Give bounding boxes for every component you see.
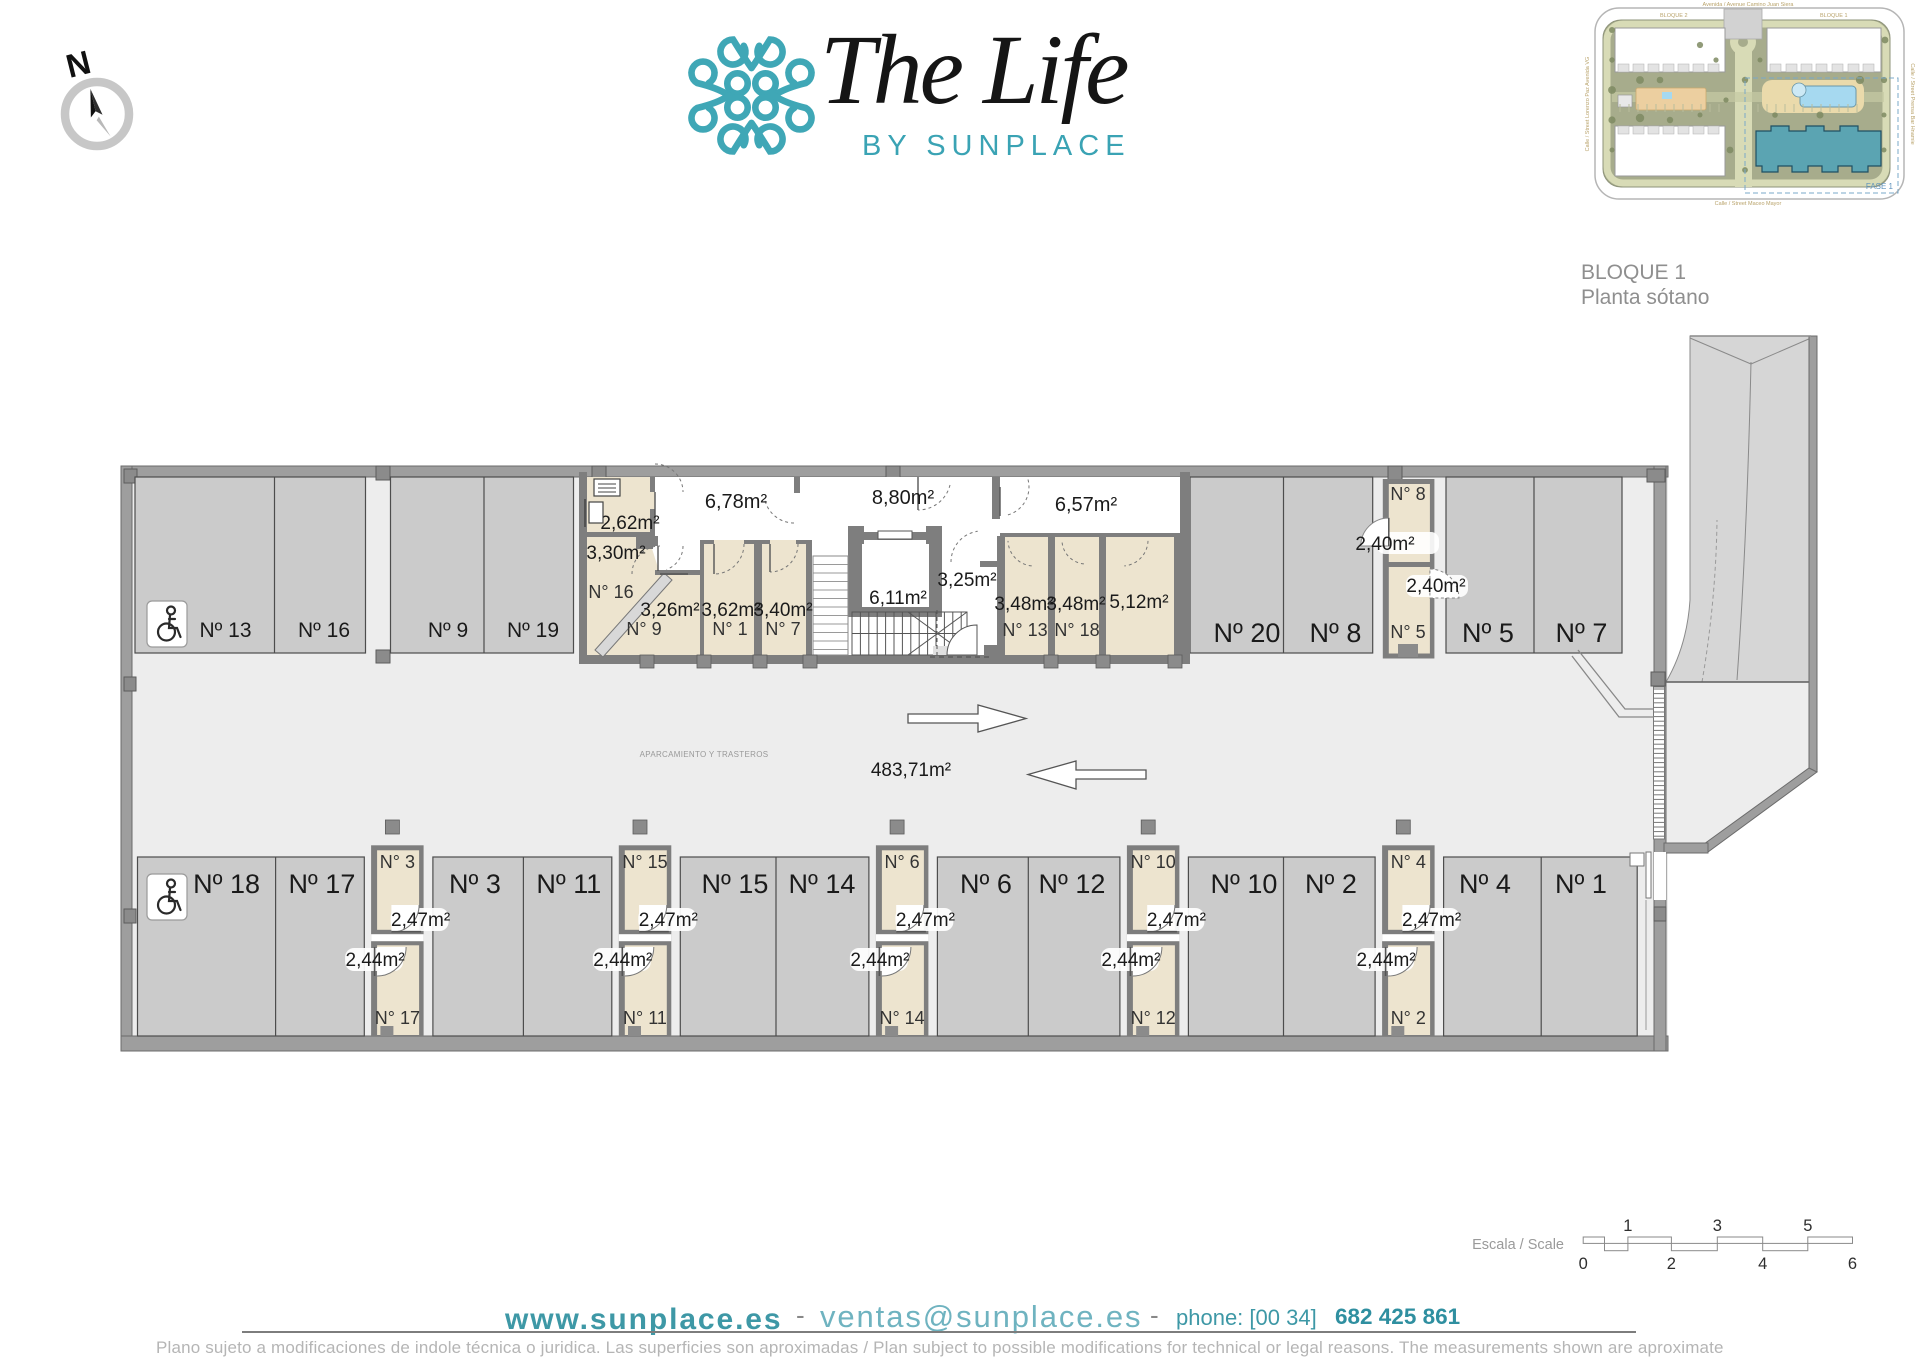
svg-text:N° 11: N° 11 [623, 1008, 667, 1028]
svg-text:3,48m²: 3,48m² [994, 594, 1053, 615]
svg-text:0: 0 [1579, 1255, 1588, 1272]
svg-text:2,40m²: 2,40m² [1355, 534, 1414, 555]
svg-text:N° 16: N° 16 [588, 582, 633, 602]
svg-text:Nº 2: Nº 2 [1305, 869, 1357, 899]
svg-text:N° 8: N° 8 [1390, 484, 1425, 504]
svg-text:Nº 18: Nº 18 [193, 869, 260, 899]
svg-text:6,11m²: 6,11m² [869, 588, 927, 609]
svg-text:N° 10: N° 10 [1131, 852, 1176, 872]
svg-text:Nº 15: Nº 15 [702, 869, 769, 899]
svg-text:1: 1 [1623, 1217, 1632, 1235]
svg-text:Nº 10: Nº 10 [1211, 869, 1278, 899]
svg-text:3,40m²: 3,40m² [753, 600, 812, 621]
svg-text:N° 14: N° 14 [879, 1008, 924, 1028]
svg-text:N° 13: N° 13 [1002, 620, 1047, 640]
svg-text:2,44m²: 2,44m² [593, 950, 652, 971]
svg-text:2,40m²: 2,40m² [1406, 576, 1465, 597]
svg-text:2,47m²: 2,47m² [391, 910, 450, 931]
svg-text:2: 2 [1667, 1255, 1676, 1272]
svg-text:3,62m²: 3,62m² [701, 600, 760, 621]
svg-text:Nº 7: Nº 7 [1556, 618, 1608, 648]
svg-text:3,30m²: 3,30m² [586, 543, 645, 564]
svg-text:N° 17: N° 17 [375, 1008, 420, 1028]
svg-text:6: 6 [1848, 1255, 1857, 1272]
svg-text:N° 2: N° 2 [1391, 1008, 1426, 1028]
svg-text:BLOQUE 1: BLOQUE 1 [1820, 13, 1848, 19]
svg-text:Calle / Street Prensa Bar Hna: Calle / Street Prensa Bar Hnamie [1909, 63, 1915, 144]
svg-text:Avenida / Avenue Camino Juan: Avenida / Avenue Camino Juan Siera [1703, 2, 1795, 8]
svg-text:N° 9: N° 9 [626, 619, 661, 639]
svg-text:N° 15: N° 15 [622, 852, 667, 872]
svg-text:Nº 12: Nº 12 [1039, 869, 1106, 899]
svg-text:Nº 19: Nº 19 [507, 619, 559, 642]
svg-text:FASE 1: FASE 1 [1866, 182, 1894, 191]
svg-text:N° 6: N° 6 [884, 852, 919, 872]
svg-text:APARCAMIENTO Y TRASTEROS: APARCAMIENTO Y TRASTEROS [640, 750, 769, 759]
svg-text:Calle / Street Maceo Mayor: Calle / Street Maceo Mayor [1715, 201, 1782, 207]
svg-text:4: 4 [1758, 1255, 1767, 1272]
svg-text:Nº 13: Nº 13 [199, 619, 251, 642]
svg-text:N° 4: N° 4 [1391, 852, 1426, 872]
svg-text:5,12m²: 5,12m² [1109, 592, 1168, 613]
svg-text:N° 18: N° 18 [1054, 620, 1099, 640]
svg-text:Nº 17: Nº 17 [288, 869, 355, 899]
svg-text:6,78m²: 6,78m² [705, 491, 768, 513]
svg-text:Nº 6: Nº 6 [960, 869, 1012, 899]
svg-text:2,47m²: 2,47m² [896, 910, 955, 931]
svg-text:Escala / Scale: Escala / Scale [1472, 1237, 1564, 1253]
svg-text:2,44m²: 2,44m² [1101, 950, 1160, 971]
svg-text:Nº 8: Nº 8 [1310, 618, 1362, 648]
svg-text:Nº 11: Nº 11 [536, 869, 601, 899]
svg-text:2,47m²: 2,47m² [1147, 910, 1206, 931]
svg-text:2,47m²: 2,47m² [1402, 910, 1461, 931]
svg-text:N° 7: N° 7 [765, 619, 800, 639]
svg-text:2,44m²: 2,44m² [346, 950, 405, 971]
svg-text:5: 5 [1803, 1217, 1812, 1235]
svg-text:BLOQUE 2: BLOQUE 2 [1660, 13, 1688, 19]
svg-text:N° 12: N° 12 [1131, 1008, 1176, 1028]
svg-text:Nº 20: Nº 20 [1214, 618, 1281, 648]
svg-text:Calle / Street Lorenzo Paz Av: Calle / Street Lorenzo Paz Avenida VG [1585, 57, 1591, 152]
svg-text:Nº 3: Nº 3 [449, 869, 501, 899]
svg-text:2,44m²: 2,44m² [1357, 950, 1416, 971]
svg-text:Nº 1: Nº 1 [1555, 869, 1607, 899]
svg-text:Nº 14: Nº 14 [789, 869, 856, 899]
svg-text:Nº 16: Nº 16 [298, 619, 350, 642]
svg-text:2,47m²: 2,47m² [639, 910, 698, 931]
svg-text:2,44m²: 2,44m² [850, 950, 909, 971]
svg-text:Nº 9: Nº 9 [428, 619, 468, 642]
svg-text:3,48m²: 3,48m² [1046, 594, 1105, 615]
svg-text:3: 3 [1713, 1217, 1722, 1235]
svg-text:Nº 4: Nº 4 [1459, 869, 1511, 899]
svg-text:N° 1: N° 1 [712, 619, 747, 639]
svg-text:483,71m²: 483,71m² [871, 760, 951, 781]
svg-text:N° 5: N° 5 [1390, 622, 1425, 642]
svg-text:3,26m²: 3,26m² [640, 600, 699, 621]
svg-text:8,80m²: 8,80m² [872, 487, 935, 509]
svg-text:6,57m²: 6,57m² [1055, 494, 1118, 516]
svg-text:2,62m²: 2,62m² [600, 513, 659, 534]
svg-text:N° 3: N° 3 [380, 852, 415, 872]
svg-text:Nº 5: Nº 5 [1462, 618, 1514, 648]
svg-text:3,25m²: 3,25m² [937, 570, 996, 591]
